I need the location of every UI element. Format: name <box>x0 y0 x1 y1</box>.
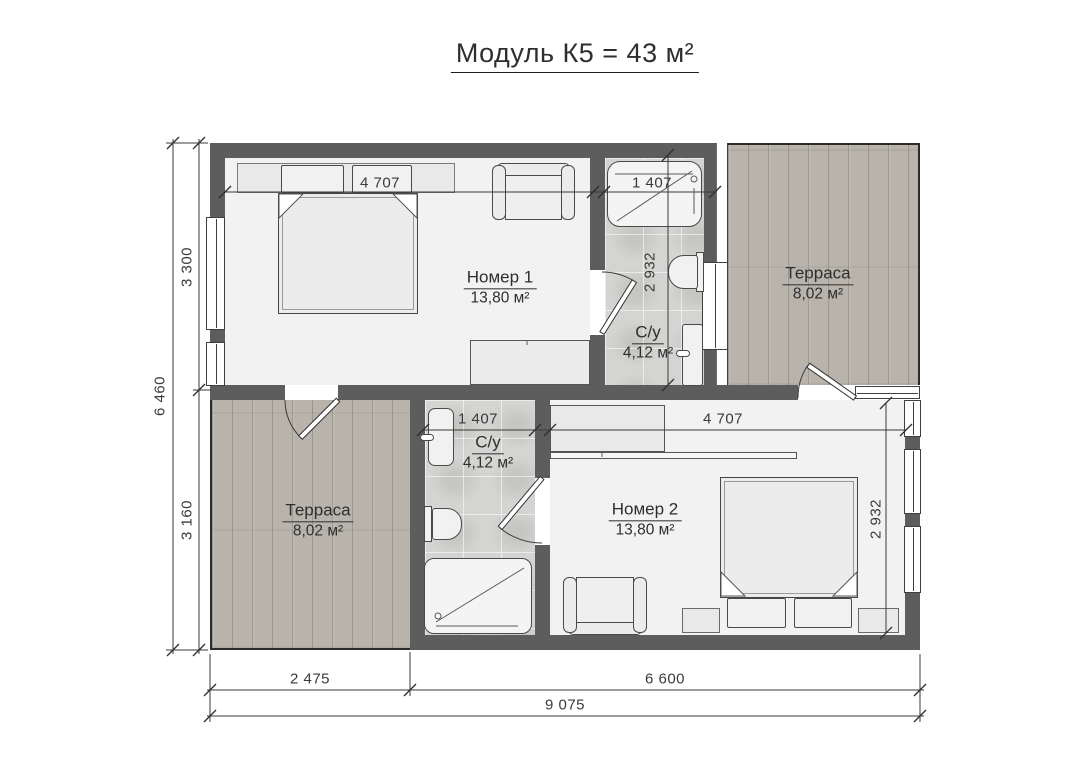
armchair-seat <box>576 577 634 623</box>
pillow <box>281 165 344 193</box>
double-bed-room2 <box>720 477 858 598</box>
armchair-arm <box>492 165 506 220</box>
pillow <box>794 598 852 628</box>
room1-area: 13,80 м² <box>464 289 537 307</box>
faucet <box>420 434 434 441</box>
window-room2-right-3 <box>904 526 921 593</box>
toilet-bowl <box>668 255 698 289</box>
armchair-arm <box>563 577 577 633</box>
terrace1-area: 8,02 м² <box>782 285 853 303</box>
window-room1-left-upper <box>206 217 225 330</box>
wall-top <box>210 143 728 158</box>
armchair-seat <box>505 175 562 220</box>
armchair-room2 <box>563 575 647 635</box>
shelf-room2 <box>550 452 797 459</box>
armchair-arm <box>633 577 647 633</box>
mattress <box>282 197 414 310</box>
dim-bath2-width: 1 407 <box>458 411 498 428</box>
window-room2-right-1 <box>904 400 921 437</box>
armchair-room1 <box>492 163 575 222</box>
room2-label: Номер 2 13,80 м² <box>609 499 682 538</box>
dim-room1-width: 4 707 <box>360 175 400 192</box>
bath2-name: С/у <box>472 432 504 454</box>
wall-room1-bath1-b <box>590 335 605 385</box>
bath1-area: 4,12 м² <box>623 344 673 362</box>
floor-plan-page: Модуль К5 = 43 м² <box>0 0 1086 768</box>
dim-room2-depth: 2 932 <box>868 499 885 539</box>
wall-right-seg2 <box>905 514 920 526</box>
wall-bath2-room2-b <box>535 545 550 637</box>
wall-middle-b <box>338 385 798 400</box>
dim-bottom-total: 9 075 <box>545 697 585 714</box>
room2-area: 13,80 м² <box>609 521 682 539</box>
nightstand <box>682 608 720 633</box>
toilet-tank <box>424 506 432 542</box>
dim-left-top: 3 300 <box>179 247 196 287</box>
room1-name: Номер 1 <box>464 267 537 289</box>
pillow <box>727 598 786 628</box>
window-room1-left-lower <box>206 342 225 386</box>
bath1-name: С/у <box>632 322 664 344</box>
dim-bath1-width: 1 407 <box>632 175 672 192</box>
wall-right-seg1 <box>905 437 920 449</box>
wall-right-seg3 <box>905 593 920 650</box>
wall-bath2-room2-a <box>535 400 550 478</box>
room1-label: Номер 1 13,80 м² <box>464 267 537 306</box>
bathtub <box>607 161 702 227</box>
nightstand <box>858 608 899 633</box>
terrace2-label: Терраса 8,02 м² <box>282 500 353 539</box>
double-bed-room1 <box>278 193 418 314</box>
faucet <box>676 350 690 357</box>
window-bath1 <box>702 262 728 350</box>
terrace2-area: 8,02 м² <box>282 522 353 540</box>
terrace1-label: Терраса 8,02 м² <box>782 263 853 302</box>
mattress <box>724 481 854 594</box>
counter-room2 <box>550 405 665 452</box>
wardrobe-headboard-room1 <box>237 163 455 193</box>
page-title: Модуль К5 = 43 м² <box>451 38 699 73</box>
dim-left-total: 6 460 <box>152 376 169 416</box>
bath1-label: С/у 4,12 м² <box>623 322 673 361</box>
bath2-area: 4,12 м² <box>463 454 513 472</box>
dim-left-bottom: 3 160 <box>179 500 196 540</box>
window-room2-top-corner <box>855 386 920 399</box>
shower-tray <box>424 558 532 634</box>
wall-bottom <box>423 635 920 650</box>
desk-room1 <box>470 340 590 385</box>
armchair-arm <box>561 165 575 220</box>
bath2-label: С/у 4,12 м² <box>463 432 513 471</box>
room2-name: Номер 2 <box>609 499 682 521</box>
armchair-back <box>568 622 642 635</box>
terrace1-name: Терраса <box>782 263 853 285</box>
wall-middle-a <box>210 385 285 400</box>
dim-room2-width: 4 707 <box>703 411 743 428</box>
toilet-bowl <box>432 508 462 540</box>
dim-bottom-seg1: 2 475 <box>290 671 330 688</box>
window-room2-right-2 <box>904 449 921 514</box>
dim-bottom-seg2: 6 600 <box>645 671 685 688</box>
dim-bath1-depth: 2 932 <box>642 252 659 292</box>
terrace2-name: Терраса <box>282 500 353 522</box>
wall-room1-bath1-a <box>590 158 605 270</box>
